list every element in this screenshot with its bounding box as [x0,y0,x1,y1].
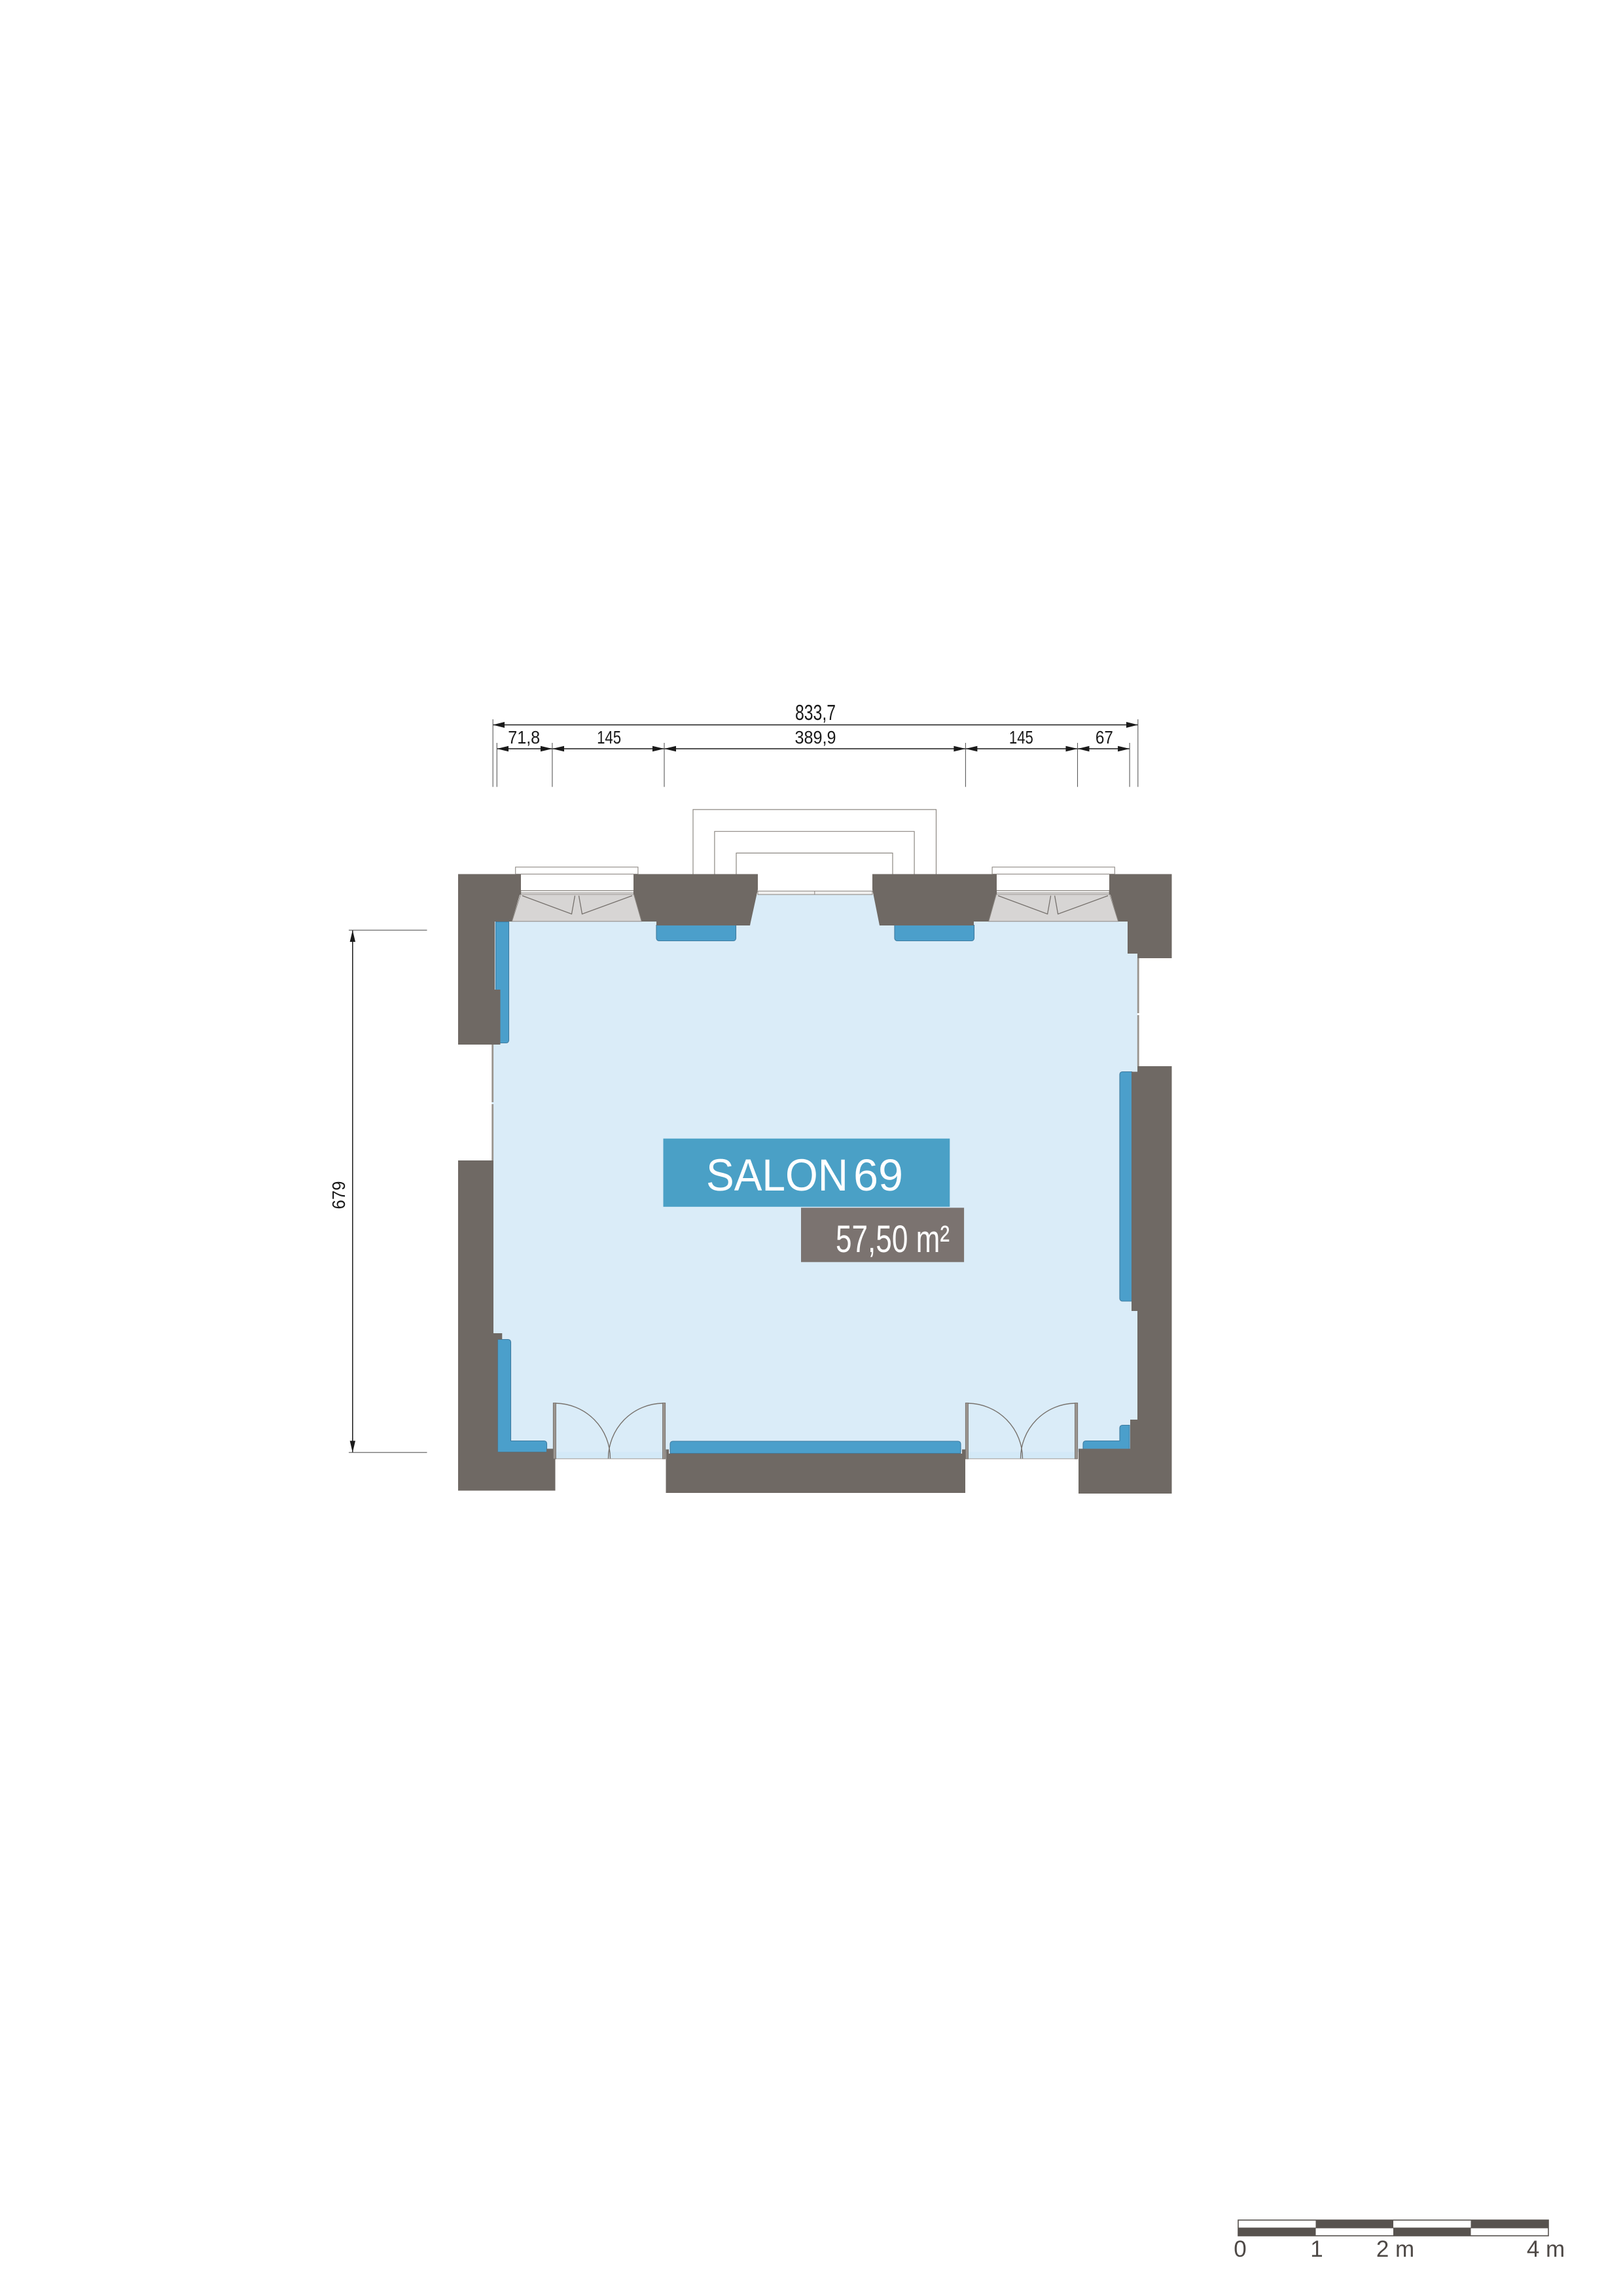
svg-text:0: 0 [1234,2236,1246,2262]
svg-text:71,8: 71,8 [508,727,540,747]
svg-text:69: 69 [853,1150,903,1200]
svg-text:2 m: 2 m [1376,2236,1414,2262]
svg-text:833,7: 833,7 [795,700,836,725]
svg-text:1: 1 [1310,2236,1323,2262]
svg-text:679: 679 [329,1181,349,1210]
svg-text:4 m: 4 m [1527,2236,1565,2262]
svg-text:389,9: 389,9 [795,727,836,747]
svg-text:SALON: SALON [706,1150,848,1200]
svg-text:67: 67 [1096,727,1113,747]
svg-text:145: 145 [597,727,621,747]
svg-text:57,50 m²: 57,50 m² [836,1218,950,1261]
svg-text:145: 145 [1009,727,1033,747]
